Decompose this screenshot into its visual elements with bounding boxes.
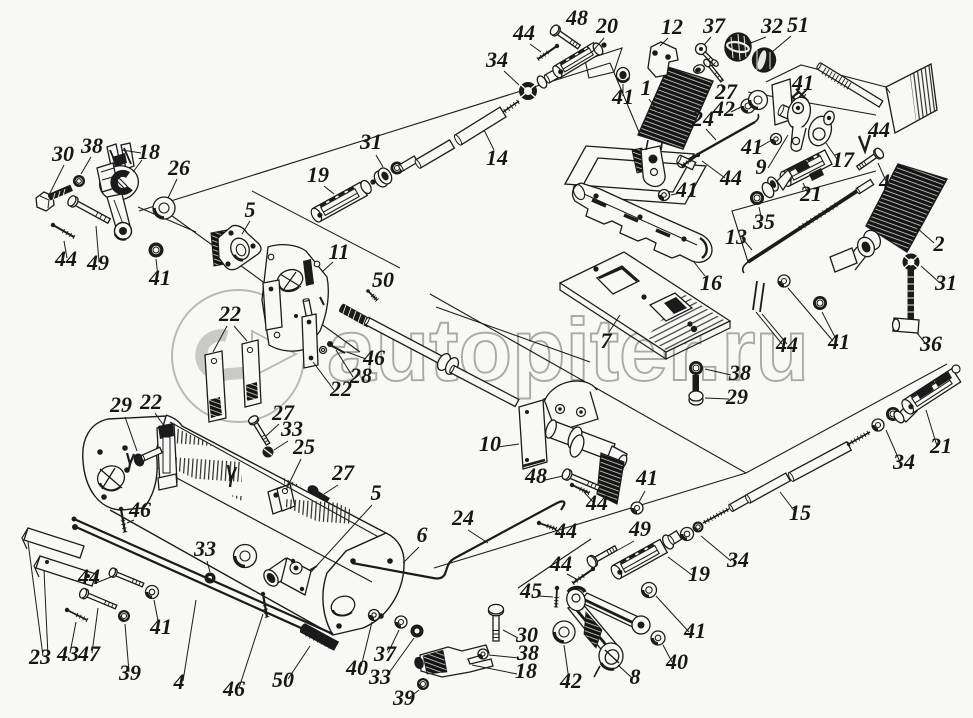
svg-text:46: 46 — [128, 497, 151, 522]
svg-text:6: 6 — [417, 522, 428, 547]
svg-text:44: 44 — [77, 564, 100, 589]
svg-text:13: 13 — [725, 224, 747, 249]
svg-text:44: 44 — [554, 518, 577, 543]
svg-text:44: 44 — [719, 165, 742, 190]
svg-text:50: 50 — [372, 267, 394, 292]
svg-text:41: 41 — [683, 618, 706, 643]
svg-text:41: 41 — [148, 265, 171, 290]
svg-text:19: 19 — [307, 162, 329, 187]
svg-text:24: 24 — [451, 505, 474, 530]
svg-text:14: 14 — [486, 145, 508, 170]
svg-text:1: 1 — [641, 75, 652, 100]
svg-text:50: 50 — [272, 667, 294, 692]
svg-text:2: 2 — [933, 231, 945, 256]
svg-text:35: 35 — [752, 209, 775, 234]
svg-text:31: 31 — [934, 270, 957, 295]
svg-text:44: 44 — [549, 551, 572, 576]
svg-text:26: 26 — [167, 155, 190, 180]
svg-text:11: 11 — [329, 239, 350, 264]
svg-text:38: 38 — [516, 640, 539, 665]
svg-text:45: 45 — [519, 578, 542, 603]
svg-text:41: 41 — [635, 465, 658, 490]
svg-text:47: 47 — [77, 641, 101, 666]
svg-text:43: 43 — [56, 641, 79, 666]
svg-text:44: 44 — [867, 117, 890, 142]
svg-text:33: 33 — [368, 664, 391, 689]
svg-text:37: 37 — [702, 13, 726, 38]
svg-text:20: 20 — [595, 13, 618, 38]
svg-text:24: 24 — [691, 106, 714, 131]
svg-text:10: 10 — [479, 431, 501, 456]
svg-text:44: 44 — [512, 20, 535, 45]
svg-text:4: 4 — [173, 669, 185, 694]
svg-text:5: 5 — [245, 197, 256, 222]
svg-text:21: 21 — [799, 181, 822, 206]
svg-text:19: 19 — [688, 561, 710, 586]
svg-text:41: 41 — [149, 614, 172, 639]
svg-text:5: 5 — [371, 480, 382, 505]
svg-text:49: 49 — [628, 516, 651, 541]
svg-text:31: 31 — [359, 129, 382, 154]
svg-text:48: 48 — [524, 463, 547, 488]
svg-text:40: 40 — [345, 655, 368, 680]
svg-text:30: 30 — [51, 141, 74, 166]
svg-text:41: 41 — [740, 134, 763, 159]
svg-text:33: 33 — [193, 536, 216, 561]
svg-text:21: 21 — [929, 433, 952, 458]
svg-text:42: 42 — [559, 668, 582, 693]
svg-text:38: 38 — [728, 360, 751, 385]
svg-text:41: 41 — [675, 177, 698, 202]
svg-text:41: 41 — [791, 70, 814, 95]
svg-text:29: 29 — [109, 392, 132, 417]
svg-text:17: 17 — [832, 147, 855, 172]
svg-text:42: 42 — [712, 96, 735, 121]
svg-text:7: 7 — [601, 328, 613, 353]
svg-text:44: 44 — [775, 332, 798, 357]
svg-text:38: 38 — [80, 133, 103, 158]
svg-text:15: 15 — [789, 500, 811, 525]
svg-text:48: 48 — [565, 5, 588, 30]
svg-text:29: 29 — [725, 384, 748, 409]
svg-text:39: 39 — [392, 685, 415, 710]
svg-text:25: 25 — [292, 434, 315, 459]
svg-text:12: 12 — [661, 14, 683, 39]
svg-text:44: 44 — [585, 490, 608, 515]
svg-text:49: 49 — [86, 250, 109, 275]
svg-text:36: 36 — [919, 331, 942, 356]
svg-text:32: 32 — [760, 13, 783, 38]
svg-text:27: 27 — [331, 460, 355, 485]
svg-text:34: 34 — [485, 47, 508, 72]
svg-text:37: 37 — [373, 641, 397, 666]
svg-text:51: 51 — [787, 12, 809, 37]
svg-text:41: 41 — [827, 329, 850, 354]
svg-text:22: 22 — [139, 389, 162, 414]
svg-text:22: 22 — [218, 301, 241, 326]
svg-text:39: 39 — [118, 660, 141, 685]
svg-text:40: 40 — [665, 649, 688, 674]
